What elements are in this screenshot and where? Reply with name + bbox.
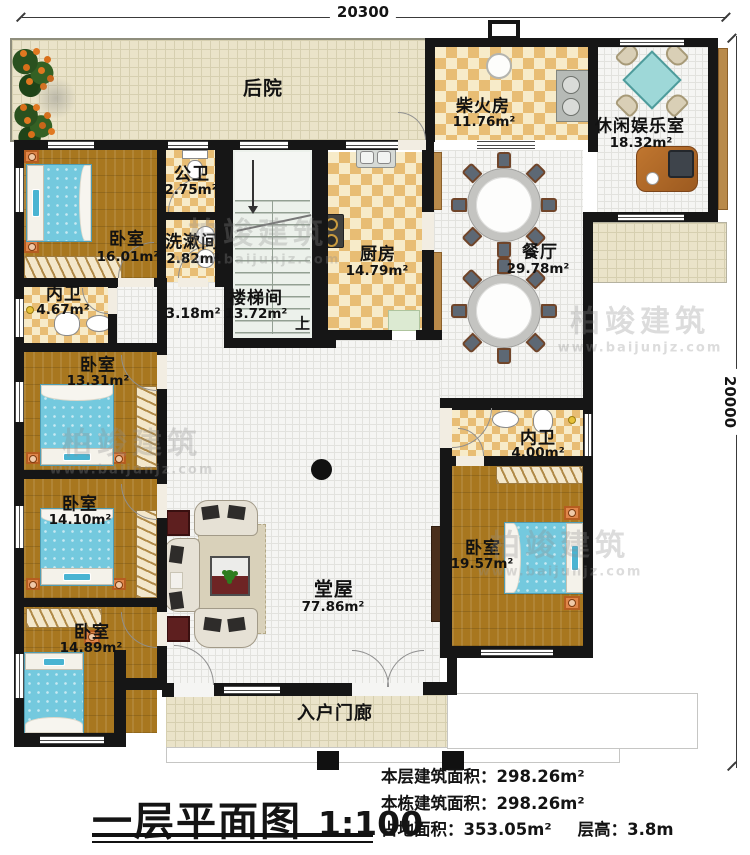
room-area-dining: 29.78m² xyxy=(507,261,570,277)
room-area-ensuite2: 4.00m² xyxy=(511,445,564,461)
sofa-cushion xyxy=(201,505,220,520)
stat-label: 层高： xyxy=(578,820,628,839)
door-gap xyxy=(178,278,208,287)
stats-row: 占地面积：353.05m²层高：3.8m xyxy=(381,817,747,844)
wall xyxy=(422,250,434,340)
title-block: 一层平面图 1:100 xyxy=(92,789,423,847)
room-area-bedroom2: 13.31m² xyxy=(67,373,130,389)
stair-landing xyxy=(235,152,310,200)
sofa-cushion xyxy=(227,617,246,632)
plant-icon xyxy=(224,570,235,581)
wall xyxy=(312,143,328,340)
title-underline-thin xyxy=(92,841,373,843)
door-gap xyxy=(157,355,167,389)
stair-arrow-icon xyxy=(252,160,254,206)
room-area-bedroom3: 14.10m² xyxy=(49,512,112,528)
window xyxy=(240,141,288,149)
dining-chair-icon xyxy=(541,304,557,318)
room-label-pubbath: 公卫 xyxy=(174,160,210,185)
room-area-washroom: 2.82m² xyxy=(166,251,219,267)
bed xyxy=(24,652,84,734)
room-label-kitchen: 厨房 xyxy=(360,240,396,265)
stair-arrow-head-icon xyxy=(248,206,258,214)
window xyxy=(618,214,684,221)
column-dot xyxy=(311,459,332,480)
wall xyxy=(583,212,593,408)
wall xyxy=(114,650,126,745)
wall xyxy=(162,683,174,697)
wall xyxy=(447,648,457,688)
room-label-leisure: 休闲娱乐室 xyxy=(595,112,685,137)
front-platform xyxy=(447,693,698,749)
dining-chair-icon xyxy=(497,152,511,168)
stairs-up-label: 上 xyxy=(295,313,311,334)
wall xyxy=(425,38,435,142)
stats-row: 本栋建筑面积：298.26m² xyxy=(381,791,747,818)
stat-label: 本层建筑面积： xyxy=(381,767,497,786)
stat-label: 占地面积： xyxy=(381,820,464,839)
sink-bowl-icon xyxy=(377,151,391,164)
dining-chair-icon xyxy=(451,304,467,318)
nightstand xyxy=(112,578,126,590)
dining-chair-icon xyxy=(451,198,467,212)
stove-burner-icon xyxy=(562,98,580,116)
door-gap xyxy=(398,140,426,150)
window xyxy=(224,686,280,694)
lamp-icon xyxy=(568,416,576,424)
room-label-bedroom5: 卧室 xyxy=(465,534,501,559)
floor-plan: 后院 柴火房 11.76m² 休闲娱乐室 18.32m² 公卫 2.75m² 卧… xyxy=(0,0,750,855)
window xyxy=(48,141,94,149)
wall xyxy=(157,212,224,220)
sink-icon xyxy=(492,411,519,428)
shrub-icon xyxy=(36,76,76,120)
room-area-bedroom1: 16.01m² xyxy=(97,249,160,265)
bed xyxy=(504,522,584,594)
door-gap xyxy=(108,288,117,314)
nightstand xyxy=(564,596,580,610)
door-gap xyxy=(456,456,484,466)
room-area-kitchen: 14.79m² xyxy=(346,263,409,279)
wardrobe xyxy=(136,510,157,598)
wardrobe xyxy=(136,386,157,468)
wall xyxy=(14,470,166,479)
room-area-stairwell: 13.72m² xyxy=(225,306,288,322)
room-area-bedroom4: 14.89m² xyxy=(60,640,123,656)
window xyxy=(584,414,592,456)
terrace-floor xyxy=(588,222,727,283)
door-gap xyxy=(422,212,434,250)
room-label-bedroom1: 卧室 xyxy=(109,225,145,250)
room-area-corridor: 3.18m² xyxy=(165,306,220,322)
window xyxy=(15,382,24,422)
dining-chair-icon xyxy=(541,198,557,212)
ceiling-light-icon xyxy=(486,53,512,79)
window xyxy=(620,39,684,46)
lamp-icon xyxy=(26,306,34,314)
window xyxy=(346,141,404,149)
dining-chair-icon xyxy=(497,348,511,364)
sofa-cushion xyxy=(169,545,184,564)
nightstand xyxy=(564,506,580,520)
sofa-cushion xyxy=(169,591,184,610)
nightstand xyxy=(26,452,40,464)
stat-value: 298.26m² xyxy=(497,794,585,813)
door-gap xyxy=(157,484,167,518)
window xyxy=(15,168,24,212)
window xyxy=(477,141,535,149)
stat-label: 本栋建筑面积： xyxy=(381,794,497,813)
door-gap xyxy=(118,278,154,287)
room-area-firewood: 11.76m² xyxy=(453,114,516,130)
dining-table xyxy=(468,275,540,347)
room-label-dining: 餐厅 xyxy=(522,238,558,263)
page-title: 一层平面图 xyxy=(92,789,302,847)
bed xyxy=(40,384,114,466)
wall xyxy=(318,330,392,340)
door-gap xyxy=(174,683,214,697)
nightstand xyxy=(112,452,126,464)
stat-value: 3.8m xyxy=(627,820,673,839)
room-area-bedroom5: 19.57m² xyxy=(451,556,514,572)
room-label-stairwell: 楼梯间 xyxy=(229,284,283,309)
room-label-bedroom3: 卧室 xyxy=(62,490,98,515)
stat-value: 298.26m² xyxy=(497,767,585,786)
closet xyxy=(496,466,583,484)
sofa-cushion xyxy=(227,505,246,520)
wall xyxy=(422,140,434,212)
stats-block: 本层建筑面积：298.26m² 本栋建筑面积：298.26m² 占地面积：353… xyxy=(381,764,747,844)
stat-value: 353.05m² xyxy=(464,820,552,839)
room-area-hall: 77.86m² xyxy=(302,599,365,615)
window xyxy=(168,141,208,149)
room-label-bedroom4: 卧室 xyxy=(74,618,110,643)
door-gap xyxy=(440,408,452,448)
window xyxy=(15,299,24,337)
room-label-backyard: 后院 xyxy=(243,74,283,101)
room-label-hall: 堂屋 xyxy=(314,575,354,602)
room-label-firewood: 柴火房 xyxy=(456,92,510,117)
room-label-bedroom2: 卧室 xyxy=(80,351,116,376)
mug-icon xyxy=(646,172,659,185)
dimension-right-value: 20000 xyxy=(721,369,739,435)
window xyxy=(481,649,553,656)
room-area-pubbath: 2.75m² xyxy=(164,182,217,198)
dining-chair-icon xyxy=(497,242,511,258)
title-underline xyxy=(92,833,373,837)
window xyxy=(40,736,104,744)
plant-berries-icon xyxy=(20,104,27,111)
dimension-top-value: 20300 xyxy=(330,3,396,21)
leisure-deck-strip xyxy=(718,48,728,210)
chimney-icon xyxy=(488,20,520,40)
bed xyxy=(26,164,92,242)
room-label-ensuite1: 内卫 xyxy=(46,280,82,305)
end-table xyxy=(166,510,190,536)
wall xyxy=(14,598,166,607)
room-area-ensuite1: 4.67m² xyxy=(36,302,89,318)
sofa-cushion xyxy=(170,572,183,589)
plant-berries-icon xyxy=(20,50,27,57)
room-label-washroom: 洗漱间 xyxy=(165,228,219,253)
porch-step xyxy=(166,747,620,763)
stats-row: 本层建筑面积：298.26m² xyxy=(381,764,747,791)
nightstand xyxy=(26,578,40,590)
fridge-icon xyxy=(388,310,420,331)
computer-monitor-icon xyxy=(668,150,694,178)
dining-table xyxy=(468,169,540,241)
toilet-icon xyxy=(182,150,208,159)
window xyxy=(15,654,24,698)
wall xyxy=(708,38,718,222)
porch-column xyxy=(317,751,339,770)
nightstand xyxy=(24,150,39,163)
room-label-porch: 入户门廊 xyxy=(297,699,373,725)
sink-bowl-icon xyxy=(360,151,374,164)
room-area-leisure: 18.32m² xyxy=(610,135,673,151)
end-table xyxy=(166,616,190,642)
window xyxy=(15,506,24,548)
sofa-cushion xyxy=(203,617,222,632)
door-gap xyxy=(157,612,167,646)
stove-burner-icon xyxy=(562,76,580,94)
